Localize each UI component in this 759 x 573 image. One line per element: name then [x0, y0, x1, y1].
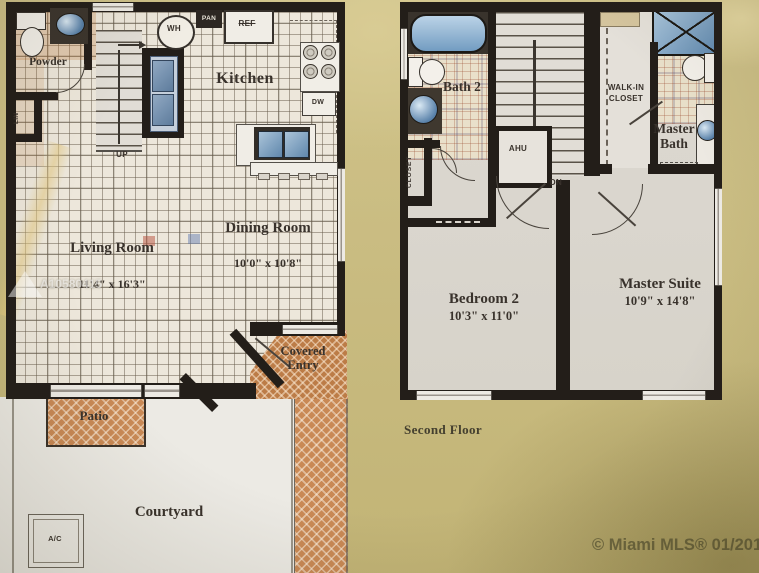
dryer-icon	[152, 94, 174, 126]
courtyard-label: Courtyard	[113, 504, 225, 520]
closet-label: CLOSET	[406, 146, 420, 198]
courtyard-border-right	[291, 397, 293, 573]
master-bath-label: Master Bath	[648, 122, 700, 151]
linen-label: LIN	[13, 104, 27, 132]
tile-accent-blue	[188, 234, 200, 244]
closet-dashed	[436, 221, 480, 225]
wall-segment	[6, 92, 58, 100]
dining-room-label: Dining Room	[218, 220, 318, 236]
refrigerator-label: REF	[224, 20, 270, 29]
burner-icon	[303, 64, 318, 79]
window	[642, 391, 706, 400]
wall-segment	[400, 2, 722, 12]
window	[401, 28, 407, 80]
stair-arrow	[118, 44, 140, 46]
dishwasher-label: DW	[302, 99, 334, 107]
stair-arrow-head	[139, 41, 146, 49]
covered-entry-label: Covered Entry	[267, 345, 339, 372]
walkway	[294, 395, 348, 573]
water-heater-label: WH	[157, 25, 191, 34]
bath2-label: Bath 2	[440, 80, 484, 95]
wall-segment	[142, 48, 150, 138]
washer-icon	[152, 60, 174, 92]
master-suite-dims: 10'9" x 14'8"	[596, 295, 724, 309]
stool-mark	[258, 173, 270, 180]
sink-basin-icon	[284, 131, 309, 158]
floor-plan-photo: WH PAN REF DW Powder LIN Kitchen UP Livi…	[0, 0, 759, 573]
walk-in-closet-label: WALK-IN CLOSET	[596, 82, 656, 104]
wall-segment	[488, 146, 496, 227]
kitchen-label: Kitchen	[202, 70, 288, 87]
master-suite-label: Master Suite	[598, 276, 722, 292]
ahu-label: AHU	[499, 145, 537, 154]
toilet-bowl-icon	[20, 27, 44, 57]
dining-room-dims: 10'0" x 10'8"	[210, 257, 326, 270]
window	[338, 168, 345, 262]
listing-id-watermark: A10580415	[40, 277, 120, 291]
window	[715, 188, 722, 286]
window	[416, 391, 492, 400]
stairs-up-label: UP	[108, 151, 136, 160]
burner-icon	[321, 64, 336, 79]
wall-segment	[556, 226, 570, 392]
sliding-door	[50, 385, 142, 397]
sink-basin-icon	[258, 131, 283, 158]
sink-icon	[56, 13, 85, 36]
sink-icon	[409, 95, 438, 124]
bedroom2-label: Bedroom 2	[426, 291, 542, 307]
stair-arrow	[118, 50, 120, 144]
bathtub-icon	[410, 14, 487, 53]
shower-icon	[652, 8, 720, 56]
stool-mark	[278, 173, 290, 180]
window	[144, 385, 180, 397]
pantry-label: PAN	[196, 15, 222, 22]
living-room-label: Living Room	[64, 240, 160, 256]
wall-segment	[594, 164, 612, 174]
wall-segment	[648, 164, 722, 174]
stairs-dn-label: DN	[542, 179, 570, 188]
stool-mark	[316, 173, 328, 180]
bedroom2-dims: 10'3" x 11'0"	[422, 310, 546, 324]
burner-icon	[303, 45, 318, 60]
window	[92, 3, 134, 11]
patio-label: Patio	[58, 409, 130, 423]
window	[282, 325, 338, 334]
mls-watermark: © Miami MLS® 01/2019	[592, 536, 758, 555]
wall-segment	[424, 138, 432, 204]
closet-shelf	[600, 12, 640, 27]
burner-icon	[321, 45, 336, 60]
walkway-border-right	[346, 399, 348, 573]
ac-label: A/C	[28, 535, 82, 543]
second-floor-caption: Second Floor	[404, 423, 524, 437]
powder-label: Powder	[10, 56, 86, 68]
courtyard-border-left	[12, 397, 14, 573]
wall-segment	[6, 134, 42, 142]
stool-mark	[298, 173, 310, 180]
